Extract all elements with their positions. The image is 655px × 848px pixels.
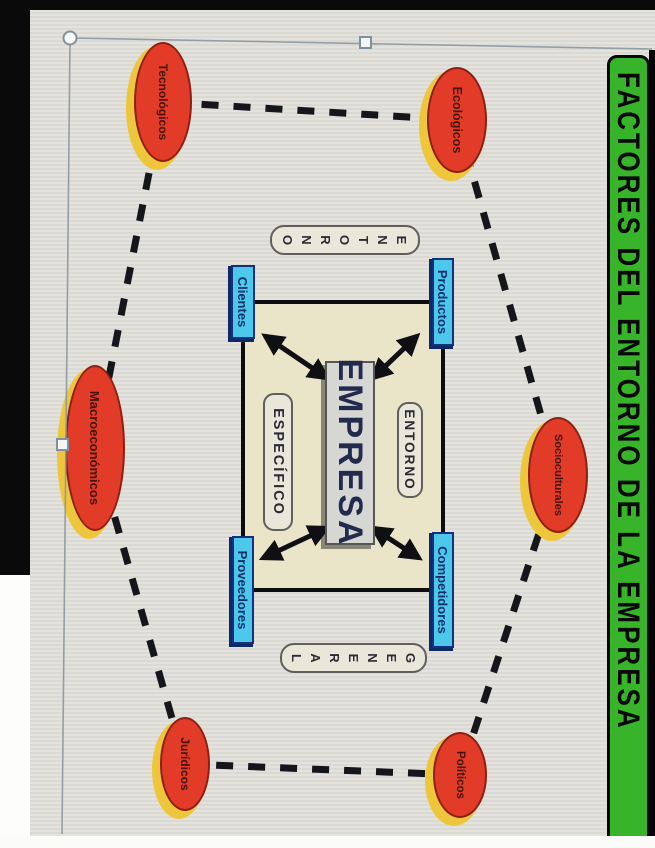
selection-overlay (0, 0, 655, 848)
selection-edge-left (62, 38, 70, 834)
photo-frame: FACTORES DEL ENTORNO DE LA EMPRESA Socio… (0, 0, 655, 848)
selection-handle-leftmid-icon[interactable] (57, 439, 68, 450)
selection-handle-corner-icon[interactable] (64, 32, 77, 45)
selection-handle-topmid-icon[interactable] (360, 37, 371, 48)
